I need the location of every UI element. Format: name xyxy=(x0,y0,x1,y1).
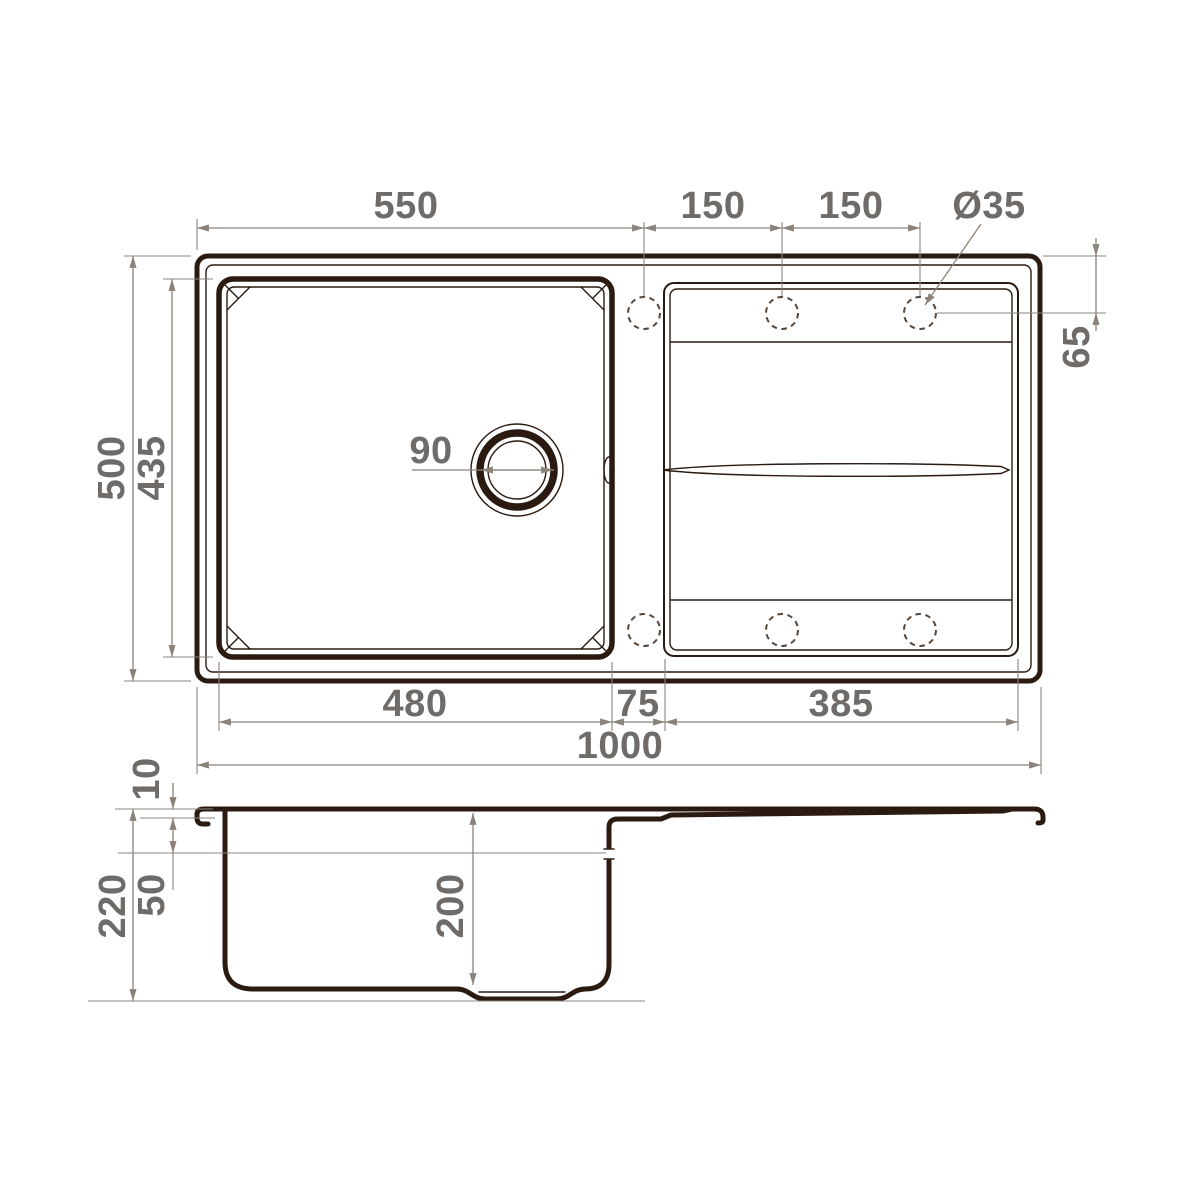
bowl-profile-right-and-drainboard xyxy=(609,809,1012,847)
dim-hole-diameter-label: Ø35 xyxy=(952,185,1025,227)
dim-50-label: 50 xyxy=(131,873,173,916)
dim-550-label: 550 xyxy=(374,185,439,227)
dim-1000-label: 1000 xyxy=(577,725,664,767)
dim-220-label: 220 xyxy=(92,874,134,939)
dim-435-label: 435 xyxy=(131,436,173,501)
dim-10-label: 10 xyxy=(126,757,168,800)
dim-150a-label: 150 xyxy=(681,185,746,227)
dim-500-label: 500 xyxy=(91,436,133,501)
sink-technical-drawing-page: 550 150 150 Ø35 65 500 435 xyxy=(0,0,1200,1200)
dim-65-label: 65 xyxy=(1056,325,1098,368)
dim-385-label: 385 xyxy=(809,683,874,725)
dim-75-label: 75 xyxy=(616,683,659,725)
sink-technical-drawing: 550 150 150 Ø35 65 500 435 xyxy=(0,0,1200,1200)
side-view: 220 10 50 200 xyxy=(88,757,1043,1001)
dim-480-label: 480 xyxy=(383,683,448,725)
bowl-profile-left xyxy=(225,811,609,999)
top-view: 550 150 150 Ø35 65 500 435 xyxy=(91,185,1106,774)
dim-90-label: 90 xyxy=(409,430,452,472)
drainboard-groove xyxy=(663,464,1009,477)
dim-200-label: 200 xyxy=(430,874,472,939)
dim-150b-label: 150 xyxy=(819,185,884,227)
